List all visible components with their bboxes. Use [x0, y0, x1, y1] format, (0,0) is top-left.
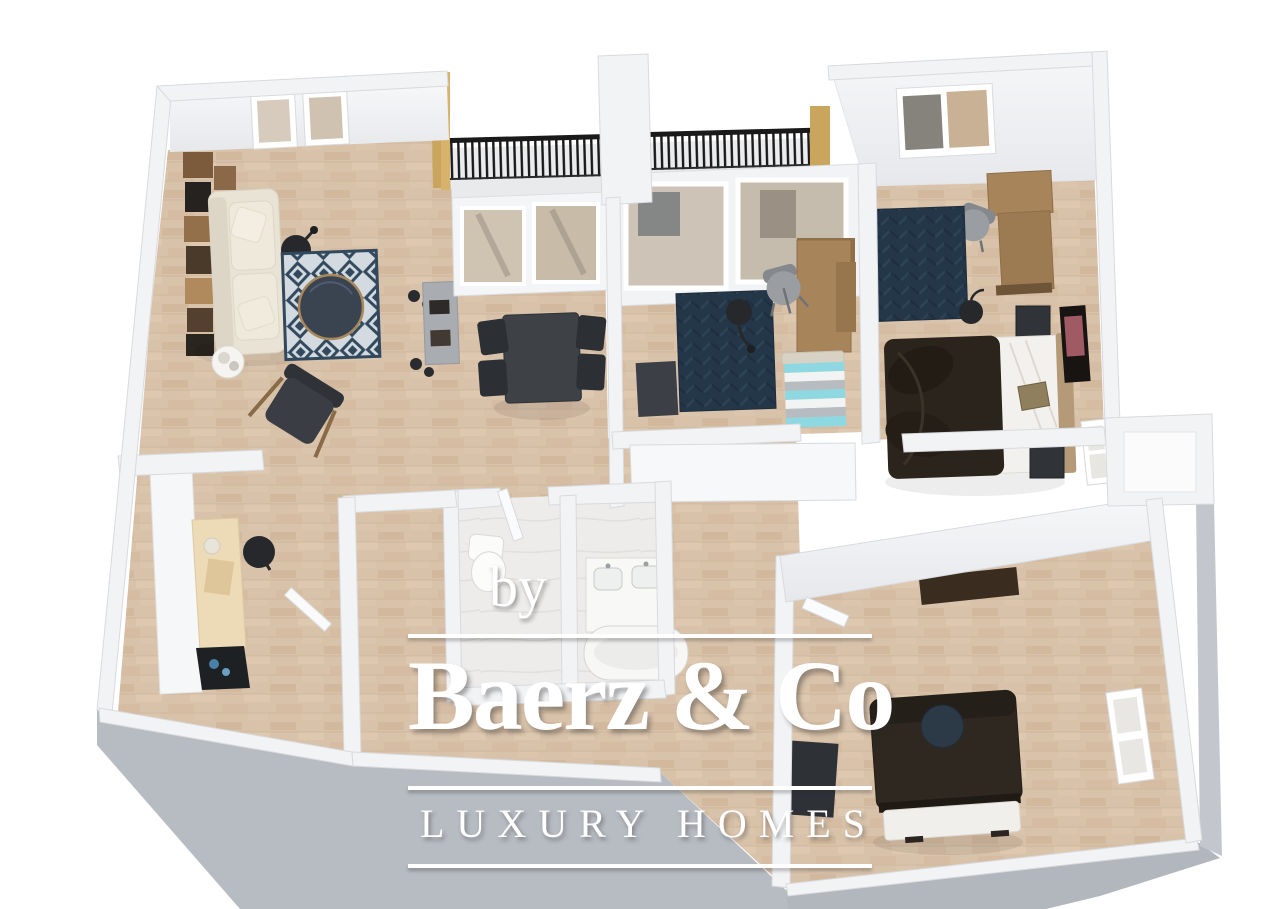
candlestick: [408, 290, 420, 302]
dining-table: [503, 313, 582, 404]
picture-frame: [183, 152, 213, 178]
dining-table-top: [503, 313, 582, 404]
artwork-image: [1064, 315, 1085, 356]
decor-vase: [229, 361, 239, 371]
wall-bedroom2-master: [858, 163, 880, 444]
nightstand: [1030, 444, 1064, 478]
accent-cushion: [1018, 382, 1050, 410]
balcony-railing-left: [446, 134, 613, 180]
picture-frame: [186, 246, 212, 274]
east-nook-inner: [1124, 432, 1196, 492]
window-glass: [946, 90, 989, 148]
lamp-shade: [726, 299, 752, 325]
dining-chair: [477, 318, 509, 356]
master-window: [896, 84, 996, 159]
coffee-table-top: [299, 275, 363, 339]
window-glass: [1113, 697, 1141, 734]
watermark-brand: Baerz & Co: [408, 646, 872, 746]
railing-slats: [447, 138, 614, 180]
doormat: [636, 361, 679, 417]
dining-chair: [478, 359, 508, 397]
bedroom2-rug: [676, 290, 776, 411]
bedroom-2: [614, 164, 862, 428]
desk-side-unit: [836, 262, 856, 332]
side-table-decor: [212, 346, 244, 378]
lamp-shade: [959, 300, 983, 324]
watermark-byline: by: [418, 558, 618, 616]
master-rug: [866, 206, 968, 321]
window-glass: [1119, 738, 1147, 775]
bedroom2-desk: [797, 238, 856, 352]
console-decor: [430, 330, 451, 347]
window-glass-mesh: [903, 94, 944, 150]
kitchen-sink-cooktop: [196, 646, 250, 690]
desk-top: [987, 170, 1053, 215]
floorplan-render: by Baerz & Co LUXURY HOMES: [0, 0, 1280, 909]
watermark-tagline: LUXURY HOMES: [408, 804, 872, 844]
dining-chair: [576, 353, 606, 390]
window-glass: [309, 96, 343, 140]
lamp-base: [747, 345, 755, 353]
bowl: [204, 538, 220, 554]
coffee-table: [299, 275, 363, 339]
balcony-railing-right: [641, 128, 814, 170]
lamp-base: [310, 226, 318, 234]
balcony-wood-post-right: [810, 106, 830, 170]
window-glass: [1089, 453, 1107, 479]
rug-navy: [866, 206, 968, 321]
bedroom2-bed: [782, 351, 847, 428]
bed-foot: [905, 836, 923, 843]
outer-wall-side-right: [1196, 502, 1222, 856]
console-decor: [429, 300, 449, 315]
desk-return: [998, 211, 1054, 292]
bed-foot: [991, 830, 1009, 837]
watermark-divider-bottom: [408, 864, 872, 868]
cutting-board: [204, 558, 234, 595]
window-glass: [257, 99, 291, 143]
sofa: [208, 188, 286, 355]
wall-artwork: [1059, 305, 1090, 383]
wall-column: [598, 54, 652, 205]
candlestick: [424, 367, 434, 377]
watermark-divider-top: [408, 634, 872, 638]
glass-reflection: [760, 190, 796, 238]
lamp-shade: [243, 536, 275, 568]
watermark-divider-middle: [408, 786, 872, 790]
watermark: by Baerz & Co LUXURY HOMES: [408, 558, 872, 888]
picture-frame: [187, 308, 213, 332]
rug-navy: [676, 290, 776, 411]
nightstand: [1016, 306, 1050, 338]
candlestick: [410, 358, 422, 370]
dish-blue: [222, 668, 230, 676]
dining-chair: [575, 315, 606, 352]
decor-vase: [218, 352, 230, 364]
picture-frame: [185, 278, 213, 304]
dish-blue: [209, 659, 219, 669]
picture-frame: [214, 166, 236, 190]
picture-frame: [185, 182, 211, 212]
